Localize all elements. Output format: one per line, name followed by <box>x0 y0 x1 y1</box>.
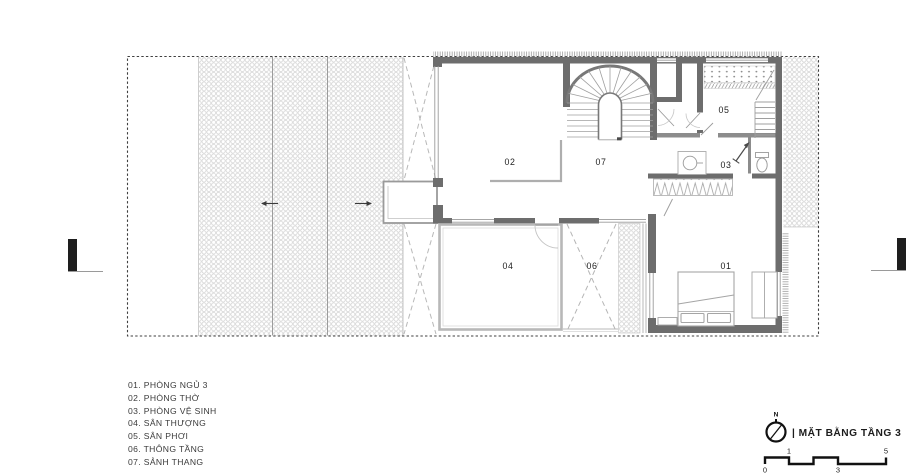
room-label-02: 02 <box>505 157 516 167</box>
scale-tick-1: 1 <box>787 447 791 456</box>
x-brace-strip-bottom <box>404 224 436 334</box>
bedroom-top-wall <box>648 174 782 179</box>
left-wall-pier-top <box>433 57 442 67</box>
legend-item: 01. PHÒNG NGỦ 3 <box>128 379 217 392</box>
balcony-box <box>384 182 438 224</box>
legend-item: 07. SẢNH THANG <box>128 456 217 469</box>
scale-bar: 0 1 3 5 <box>763 447 888 474</box>
bedside-bench <box>658 318 677 326</box>
section-marker-left <box>68 239 103 272</box>
room-label-04: 04 <box>503 261 514 271</box>
void-06 <box>567 224 616 331</box>
north-compass-icon <box>767 419 786 442</box>
terrace-door <box>535 225 558 248</box>
roof-hatch-area <box>199 57 404 337</box>
room-label-06: 06 <box>587 261 598 271</box>
wardrobe-door-leaf <box>664 199 673 216</box>
legend-item: 05. SÂN PHƠI <box>128 430 217 443</box>
toilet-icon <box>756 153 769 173</box>
corridor-doors <box>658 109 713 135</box>
roof-hatch-fill <box>199 57 404 336</box>
room-label-01: 01 <box>721 261 732 271</box>
pillow <box>708 314 731 323</box>
side-hatch-strip <box>784 57 819 227</box>
top-wall-insulation-ticks <box>433 52 782 58</box>
plan-title: | MẶT BẰNG TẦNG 3 <box>792 426 901 439</box>
scale-tick-3: 3 <box>836 466 840 474</box>
drying-yard-05 <box>704 66 775 138</box>
terrace-parapet <box>440 225 562 330</box>
legend-item: 06. THÔNG TẦNG <box>128 443 217 456</box>
legend-item: 03. PHÒNG VỆ SINH <box>128 405 217 418</box>
pillow <box>681 314 704 323</box>
right-wall-hatch-ticks <box>783 233 789 333</box>
x-brace-strip-top <box>404 58 436 180</box>
stair-center-newel <box>599 93 622 140</box>
bed <box>678 272 734 326</box>
bedroom-01 <box>654 179 778 326</box>
shower-arrow-icon <box>733 142 750 163</box>
floor-plan-sheet: 02 07 05 03 01 04 06 N | MẶT BẰNG TẦNG 3… <box>0 0 920 474</box>
altar-low-wall <box>490 140 561 181</box>
cabinet <box>752 272 777 318</box>
wardrobe <box>654 179 733 196</box>
room-label-07: 07 <box>596 157 607 167</box>
north-label: N <box>774 412 779 419</box>
legend-item: 04. SÂN THƯỢNG <box>128 417 217 430</box>
clothesline-dots <box>704 66 775 83</box>
shaft-right-wall <box>676 57 682 102</box>
terrace-parapet-inner <box>443 228 558 326</box>
room-legend: 01. PHÒNG NGỦ 3 02. PHÒNG THỜ 03. PHÒNG … <box>128 379 217 469</box>
terrace-04 <box>440 225 562 330</box>
bedroom-left-wall <box>648 214 656 273</box>
scale-tick-0: 0 <box>763 466 767 474</box>
room-label-03: 03 <box>721 160 732 170</box>
left-wall-pier-mid <box>433 178 443 187</box>
shaft-bottom-wall <box>650 97 682 102</box>
legend-item: 02. PHÒNG THỜ <box>128 392 217 405</box>
stair-07 <box>567 66 653 140</box>
room-label-05: 05 <box>719 105 730 115</box>
scale-tick-5: 5 <box>884 447 888 456</box>
section-marker-right <box>871 238 906 271</box>
skylight-hatch-strip <box>619 224 641 334</box>
